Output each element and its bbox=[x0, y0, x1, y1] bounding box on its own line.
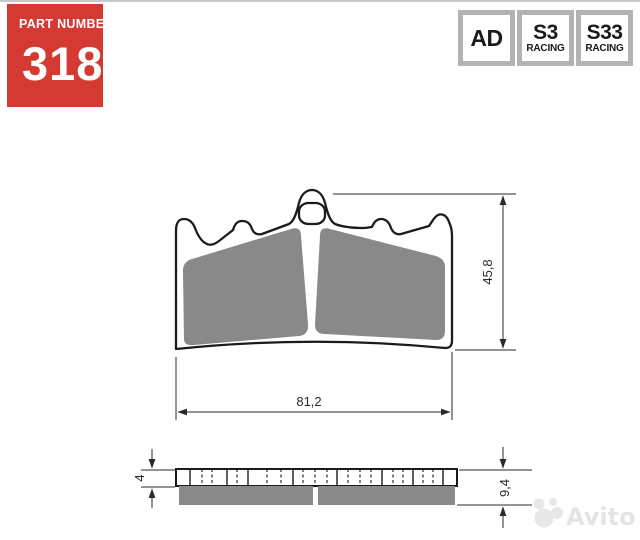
width-dimension-label: 81,2 bbox=[296, 394, 321, 409]
front-view: 45,8 81,2 bbox=[176, 190, 516, 420]
side-view: 4 9,4 bbox=[132, 447, 532, 528]
avito-watermark: Avito bbox=[534, 498, 636, 531]
side-friction-right bbox=[318, 486, 455, 505]
mounting-hole bbox=[299, 203, 325, 224]
side-backing-plate bbox=[176, 469, 457, 486]
avito-logo-circle bbox=[549, 498, 557, 506]
height-dimension-label: 45,8 bbox=[480, 259, 495, 284]
brake-pad-drawing: 45,8 81,2 bbox=[0, 0, 640, 540]
total-thickness-label: 9,4 bbox=[497, 479, 512, 497]
avito-logo-circle bbox=[535, 509, 554, 528]
avito-logo-circle bbox=[551, 507, 563, 519]
dimension-total-thickness bbox=[457, 447, 532, 528]
side-friction-left bbox=[179, 486, 313, 505]
avito-watermark-text: Avito bbox=[566, 503, 636, 531]
avito-logo-circle bbox=[534, 499, 545, 510]
dimension-width bbox=[176, 352, 452, 420]
plate-thickness-label: 4 bbox=[132, 474, 147, 481]
